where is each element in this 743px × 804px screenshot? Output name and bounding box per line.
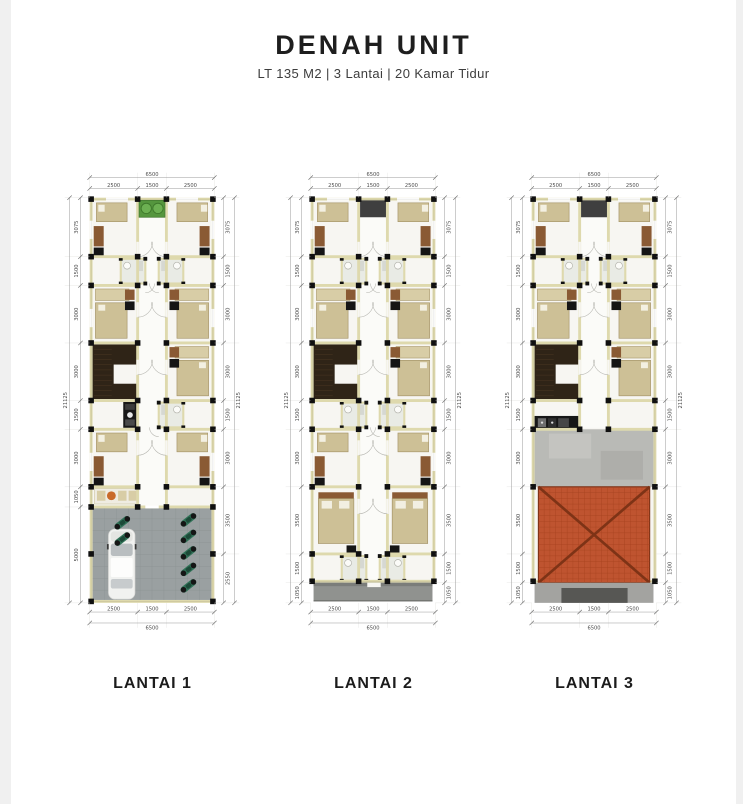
svg-text:3000: 3000 [667,451,673,464]
svg-text:1500: 1500 [225,408,231,421]
svg-text:3000: 3000 [74,365,80,378]
header: DENAH UNIT LT 135 M2 | 3 Lantai | 20 Kam… [11,0,736,81]
svg-text:1500: 1500 [74,408,80,421]
svg-text:3075: 3075 [295,221,301,234]
svg-text:1500: 1500 [667,562,673,575]
svg-text:1500: 1500 [516,408,522,421]
svg-text:2500: 2500 [405,183,418,189]
svg-text:1500: 1500 [446,264,452,277]
svg-text:2500: 2500 [405,606,418,612]
svg-text:2500: 2500 [184,183,197,189]
svg-text:3000: 3000 [225,365,231,378]
floorplan-graphics: 2500150025006500250015002500650030751500… [63,172,242,632]
floorplan-lantai-2: 2500150025006500250015002500650030751500… [280,167,467,693]
svg-text:2550: 2550 [225,572,231,585]
svg-text:1500: 1500 [446,562,452,575]
floorplan-lantai-1: 2500150025006500250015002500650030751500… [59,167,246,693]
svg-text:3000: 3000 [295,308,301,321]
svg-text:1500: 1500 [74,264,80,277]
floorplan-drawing-3: 2500150025006500250015002500650030751500… [501,167,688,637]
svg-text:3500: 3500 [516,514,522,527]
svg-text:1500: 1500 [295,264,301,277]
svg-text:1500: 1500 [446,408,452,421]
svg-text:3500: 3500 [295,514,301,527]
svg-text:1050: 1050 [74,490,80,503]
svg-text:3000: 3000 [225,308,231,321]
svg-text:6500: 6500 [145,172,158,178]
svg-text:3075: 3075 [225,221,231,234]
svg-text:1050: 1050 [446,586,452,599]
svg-text:1500: 1500 [295,408,301,421]
svg-text:3000: 3000 [295,451,301,464]
floorplan-drawing-2: 2500150025006500250015002500650030751500… [280,167,467,637]
floorplan-svg-lantai-2: 2500150025006500250015002500650030751500… [280,167,467,637]
svg-text:3000: 3000 [295,365,301,378]
svg-text:1500: 1500 [516,562,522,575]
svg-text:3000: 3000 [667,365,673,378]
svg-text:3500: 3500 [225,514,231,527]
plans-row: 2500150025006500250015002500650030751500… [11,167,736,693]
svg-text:21125: 21125 [63,392,69,408]
page-subtitle: LT 135 M2 | 3 Lantai | 20 Kamar Tidur [11,66,736,81]
svg-text:3000: 3000 [74,451,80,464]
svg-text:3000: 3000 [446,365,452,378]
svg-text:3000: 3000 [516,365,522,378]
svg-text:1500: 1500 [145,606,158,612]
svg-text:3500: 3500 [667,514,673,527]
svg-text:3500: 3500 [446,514,452,527]
svg-text:3075: 3075 [667,221,673,234]
floorplan-svg-lantai-3: 2500150025006500250015002500650030751500… [501,167,688,637]
svg-text:1500: 1500 [366,606,379,612]
svg-text:1500: 1500 [667,264,673,277]
svg-text:3075: 3075 [74,221,80,234]
svg-text:1500: 1500 [145,183,158,189]
svg-text:1500: 1500 [587,183,600,189]
svg-text:3000: 3000 [446,308,452,321]
svg-text:1050: 1050 [667,586,673,599]
svg-text:3000: 3000 [516,451,522,464]
svg-text:1500: 1500 [587,606,600,612]
svg-text:21125: 21125 [505,392,511,408]
svg-text:1500: 1500 [667,408,673,421]
svg-text:2500: 2500 [626,606,639,612]
floorplan-graphics: 2500150025006500250015002500650030751500… [505,172,684,632]
floorplan-lantai-3: 2500150025006500250015002500650030751500… [501,167,688,693]
floorplan-sheet: DENAH UNIT LT 135 M2 | 3 Lantai | 20 Kam… [0,0,743,804]
svg-text:21125: 21125 [678,392,684,408]
svg-text:3000: 3000 [225,451,231,464]
svg-text:5000: 5000 [74,548,80,561]
svg-text:2500: 2500 [107,606,120,612]
svg-text:1500: 1500 [225,264,231,277]
floorplan-drawing-1: 2500150025006500250015002500650030751500… [59,167,246,637]
svg-text:21125: 21125 [236,392,242,408]
svg-text:21125: 21125 [457,392,463,408]
svg-text:1500: 1500 [366,183,379,189]
svg-text:3075: 3075 [516,221,522,234]
svg-text:2500: 2500 [328,606,341,612]
svg-text:1500: 1500 [295,562,301,575]
svg-text:6500: 6500 [587,626,600,632]
svg-text:3000: 3000 [446,451,452,464]
svg-text:3000: 3000 [74,308,80,321]
svg-text:1050: 1050 [516,586,522,599]
svg-text:1050: 1050 [295,586,301,599]
floorplan-svg-lantai-1: 2500150025006500250015002500650030751500… [59,167,246,637]
svg-text:3075: 3075 [446,221,452,234]
svg-text:2500: 2500 [107,183,120,189]
svg-text:2500: 2500 [549,606,562,612]
floorplan-graphics: 2500150025006500250015002500650030751500… [284,172,463,632]
svg-text:2500: 2500 [549,183,562,189]
svg-text:2500: 2500 [328,183,341,189]
svg-text:2500: 2500 [184,606,197,612]
svg-text:6500: 6500 [366,626,379,632]
svg-text:6500: 6500 [366,172,379,178]
svg-text:6500: 6500 [587,172,600,178]
floor-label-1: LANTAI 1 [113,675,192,693]
svg-text:2500: 2500 [626,183,639,189]
svg-text:1500: 1500 [516,264,522,277]
floor-label-2: LANTAI 2 [334,675,413,693]
svg-text:3000: 3000 [516,308,522,321]
svg-text:21125: 21125 [284,392,290,408]
svg-text:3000: 3000 [667,308,673,321]
svg-text:6500: 6500 [145,626,158,632]
floor-label-3: LANTAI 3 [555,675,634,693]
page-title: DENAH UNIT [11,30,736,61]
